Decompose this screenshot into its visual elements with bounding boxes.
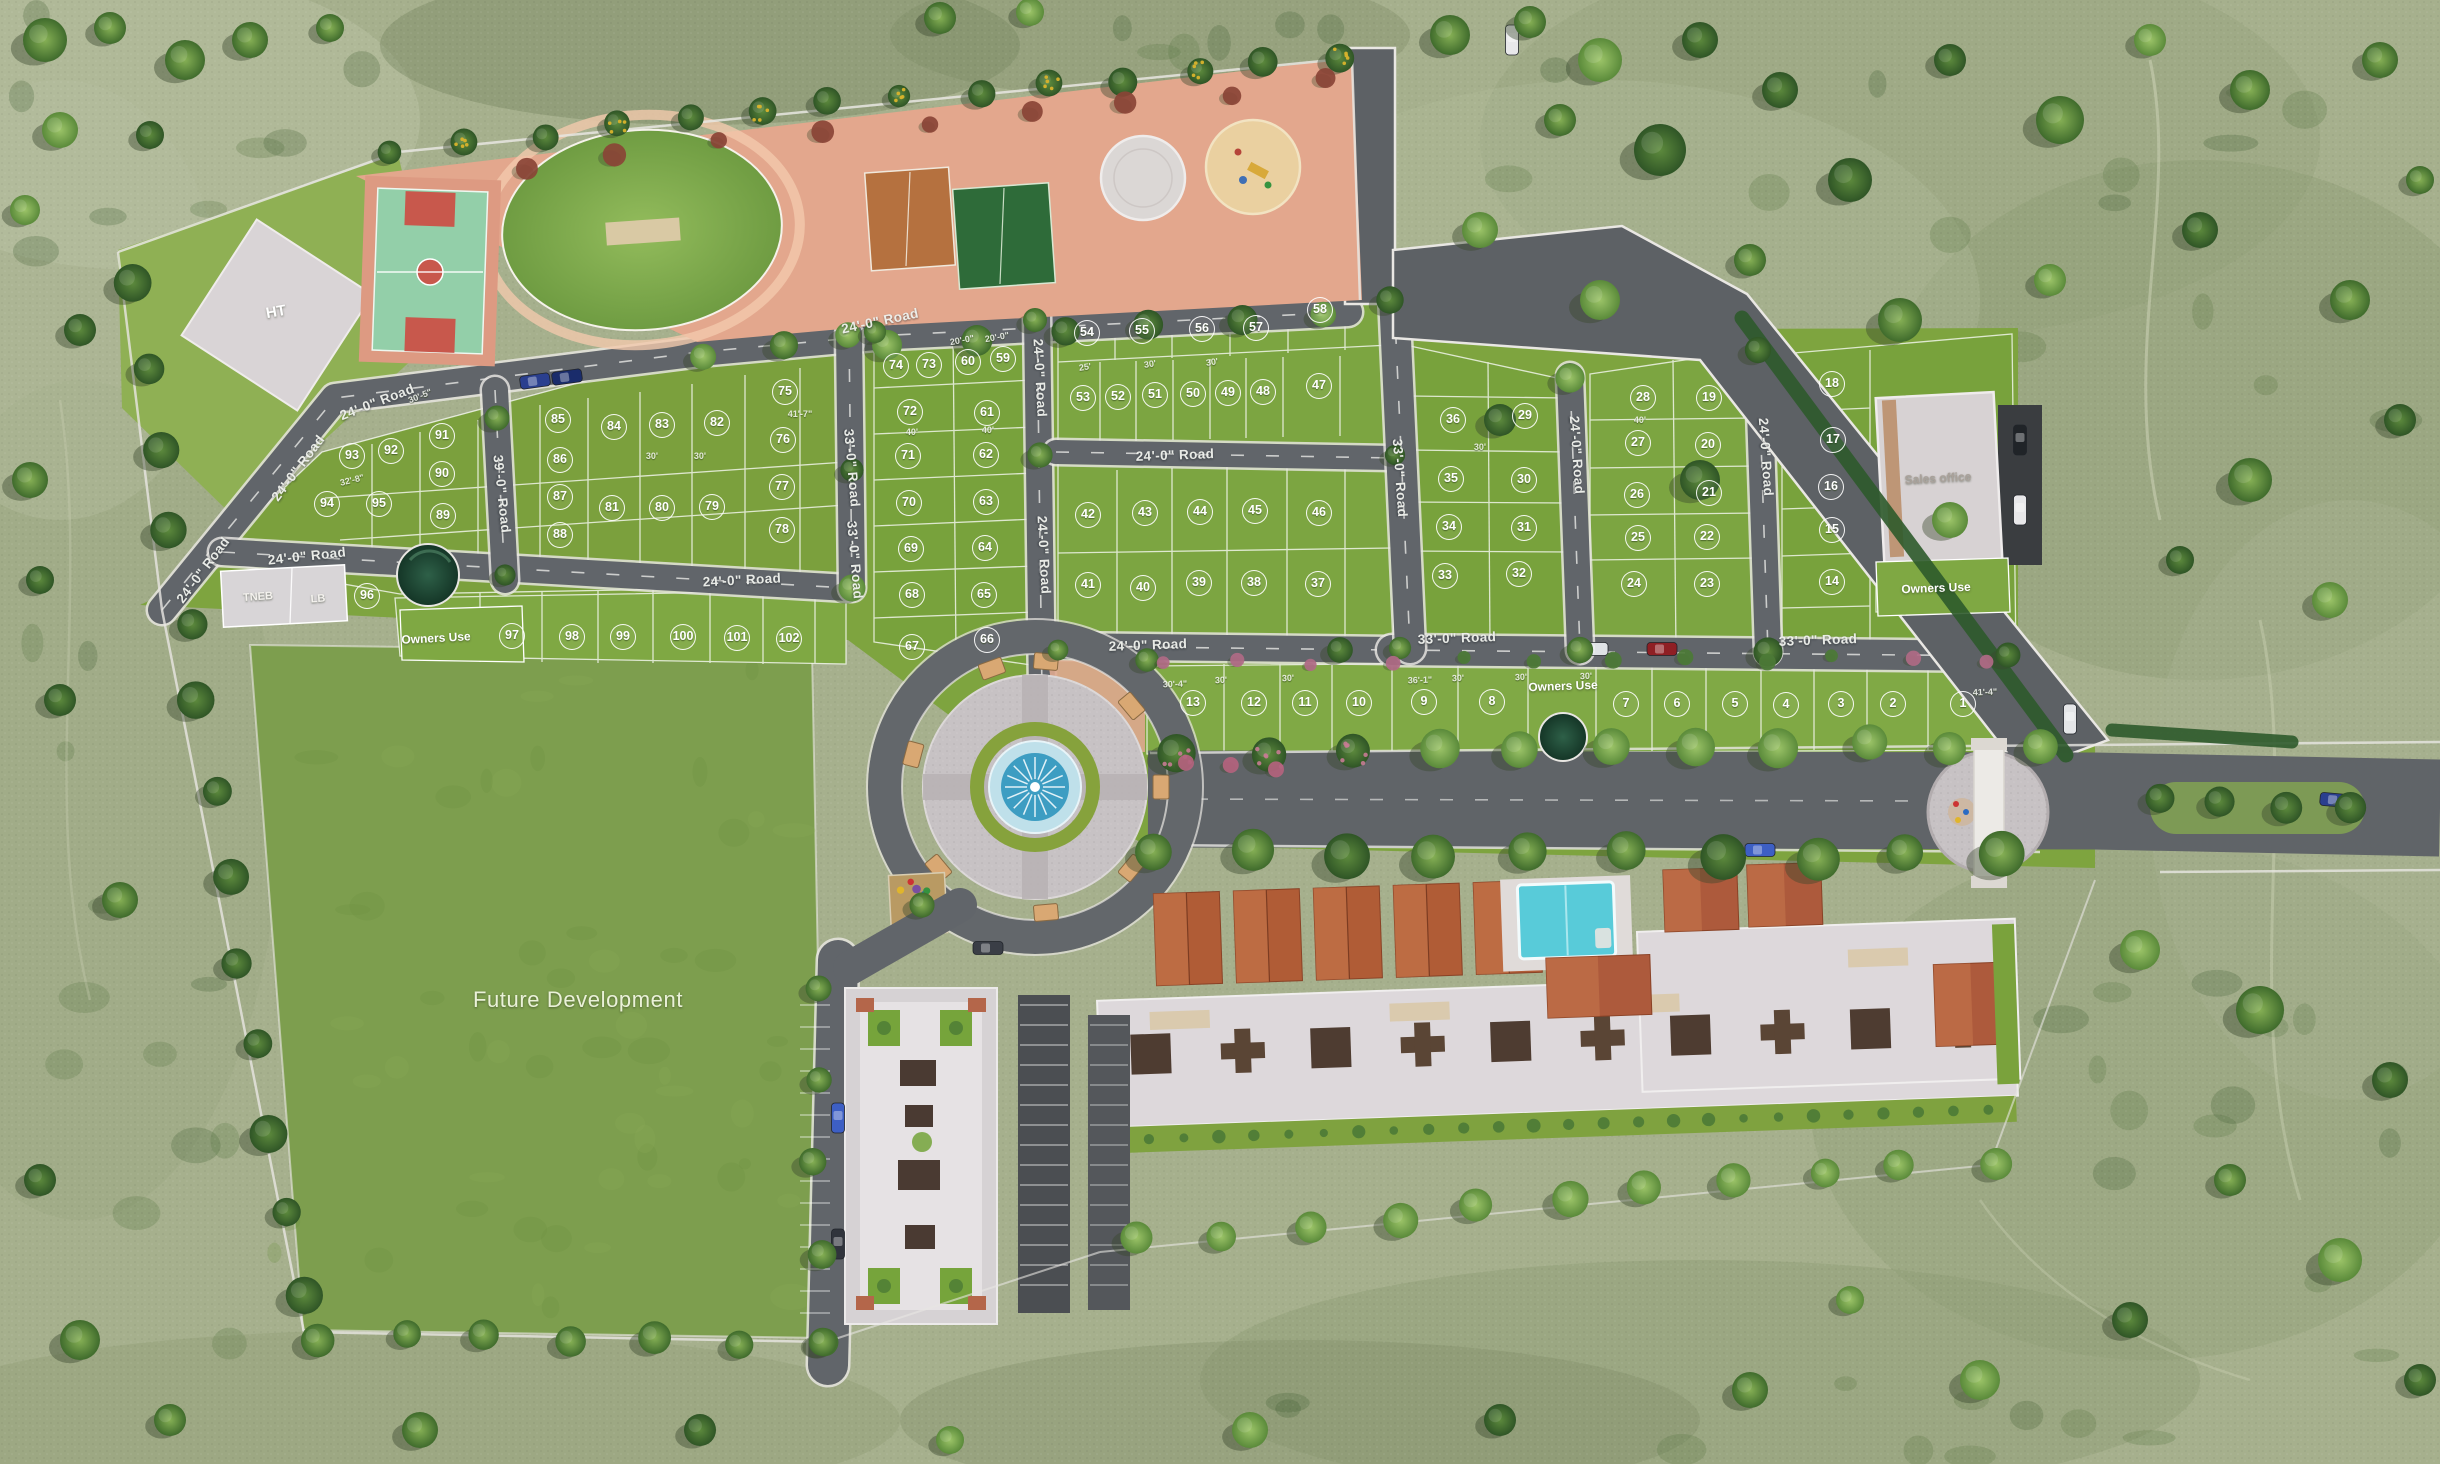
plot-number-87: 87	[547, 484, 573, 510]
plot-number-85: 85	[545, 407, 571, 433]
road-label: 24'-0" Road	[1034, 515, 1053, 594]
plot-number-71: 71	[895, 443, 921, 469]
plot-number-35: 35	[1438, 466, 1464, 492]
plot-number-83: 83	[649, 412, 675, 438]
plot-number-4: 4	[1773, 692, 1799, 718]
dimension-label: 30'	[694, 451, 706, 461]
plot-number-52: 52	[1105, 384, 1131, 410]
plot-number-28: 28	[1630, 385, 1656, 411]
road-label: 24'-0" Road	[1030, 338, 1049, 417]
road-label: 24'-0" Road	[173, 534, 232, 606]
plot-number-7: 7	[1613, 691, 1639, 717]
plot-number-100: 100	[670, 624, 696, 650]
dimension-label: 30'	[1215, 675, 1227, 685]
dimension-label: 41'-7"	[788, 409, 812, 419]
plot-number-43: 43	[1132, 500, 1158, 526]
plot-number-47: 47	[1306, 373, 1332, 399]
plot-number-12: 12	[1241, 690, 1267, 716]
plot-number-88: 88	[547, 522, 573, 548]
plot-number-58: 58	[1307, 297, 1333, 323]
plot-number-31: 31	[1511, 515, 1537, 541]
dimension-label: 30'	[1580, 671, 1592, 681]
road-label: 24'-0" Road	[1756, 417, 1776, 496]
road-label: 33'-0" Road	[1778, 631, 1857, 649]
area-label-tneb: TNEB	[243, 590, 274, 604]
road-label: 24'-0" Road	[1567, 415, 1587, 494]
plot-number-75: 75	[772, 379, 798, 405]
plot-number-84: 84	[601, 414, 627, 440]
plot-number-76: 76	[770, 427, 796, 453]
road-label: 33'-0" Road	[1417, 629, 1496, 647]
plot-number-73: 73	[916, 352, 942, 378]
plot-number-22: 22	[1694, 524, 1720, 550]
area-label-sales-office: Sales office	[1904, 469, 1971, 486]
area-label-owners-use-bottom: Owners Use	[1528, 678, 1598, 694]
plot-number-89: 89	[430, 503, 456, 529]
plot-number-37: 37	[1305, 571, 1331, 597]
plot-number-34: 34	[1436, 514, 1462, 540]
plot-number-53: 53	[1070, 385, 1096, 411]
plot-number-41: 41	[1075, 572, 1101, 598]
plot-number-13: 13	[1180, 690, 1206, 716]
plot-number-24: 24	[1621, 571, 1647, 597]
plot-number-49: 49	[1215, 380, 1241, 406]
plot-number-46: 46	[1306, 500, 1332, 526]
plot-number-20: 20	[1695, 432, 1721, 458]
plot-number-21: 21	[1696, 480, 1722, 506]
plot-number-25: 25	[1625, 525, 1651, 551]
plot-number-16: 16	[1818, 474, 1844, 500]
plot-number-36: 36	[1440, 407, 1466, 433]
plot-number-66: 66	[974, 627, 1000, 653]
plot-number-19: 19	[1696, 385, 1722, 411]
plot-number-72: 72	[897, 399, 923, 425]
dimension-label: 41'-4"	[1973, 687, 1998, 698]
plot-number-63: 63	[973, 489, 999, 515]
plot-number-54: 54	[1074, 320, 1100, 346]
plot-number-42: 42	[1075, 502, 1101, 528]
plot-number-93: 93	[339, 443, 365, 469]
plot-number-44: 44	[1187, 499, 1213, 525]
plot-number-64: 64	[972, 535, 998, 561]
plot-number-18: 18	[1819, 371, 1845, 397]
road-label: 33'-0" Road	[841, 428, 863, 508]
dimension-label: 40'	[1634, 415, 1646, 425]
road-label: 24'-0" Road	[1108, 636, 1187, 654]
plot-number-15: 15	[1819, 517, 1845, 543]
plot-number-6: 6	[1664, 691, 1690, 717]
plot-number-51: 51	[1142, 382, 1168, 408]
site-plan-canvas: 24'-0" Road24'-0" Road24'-0" Road24'-0" …	[0, 0, 2440, 1464]
area-label-owners-use-right: Owners Use	[1901, 580, 1971, 596]
road-label: 24'-0" Road	[702, 570, 781, 589]
plot-number-74: 74	[883, 353, 909, 379]
road-label: 24'-0" Road	[267, 544, 347, 567]
area-label-ht: HT	[265, 302, 288, 322]
plot-number-8: 8	[1479, 689, 1505, 715]
road-label: 24'-0" Road	[840, 305, 920, 336]
dimension-label: 20'-0"	[984, 330, 1010, 344]
plot-number-62: 62	[973, 442, 999, 468]
plot-number-26: 26	[1624, 482, 1650, 508]
plot-number-57: 57	[1243, 315, 1269, 341]
dimension-label: 30'-4"	[1163, 679, 1188, 690]
plot-number-90: 90	[429, 461, 455, 487]
dimension-label: 30'	[1143, 358, 1156, 370]
plot-number-65: 65	[971, 582, 997, 608]
plot-number-97: 97	[499, 623, 525, 649]
plot-number-78: 78	[769, 517, 795, 543]
plot-number-32: 32	[1506, 561, 1532, 587]
plot-number-61: 61	[974, 400, 1000, 426]
plot-number-33: 33	[1432, 563, 1458, 589]
plot-number-96: 96	[354, 583, 380, 609]
plot-number-14: 14	[1819, 569, 1845, 595]
plot-number-102: 102	[776, 626, 802, 652]
labels-layer: 24'-0" Road24'-0" Road24'-0" Road24'-0" …	[0, 0, 2440, 1464]
plot-number-68: 68	[899, 582, 925, 608]
plot-number-55: 55	[1129, 318, 1155, 344]
dimension-label: 30'	[1474, 442, 1486, 452]
road-label: 24'-0" Road	[1135, 446, 1214, 464]
dimension-label: 25'	[1078, 361, 1091, 373]
plot-number-1: 1	[1950, 691, 1976, 717]
plot-number-81: 81	[599, 495, 625, 521]
dimension-label: 32'-8"	[339, 472, 365, 488]
plot-number-94: 94	[314, 491, 340, 517]
dimension-label: 30'	[1515, 672, 1527, 682]
plot-number-29: 29	[1512, 403, 1538, 429]
dimension-label: 30'	[1282, 673, 1294, 683]
road-label: 39'-0" Road	[490, 454, 513, 534]
dimension-label: 30'	[1205, 356, 1218, 368]
dimension-label: 20'-0"	[949, 333, 975, 347]
plot-number-67: 67	[899, 634, 925, 660]
plot-number-30: 30	[1511, 467, 1537, 493]
plot-number-39: 39	[1186, 570, 1212, 596]
plot-number-92: 92	[378, 438, 404, 464]
plot-number-10: 10	[1346, 690, 1372, 716]
plot-number-38: 38	[1241, 570, 1267, 596]
dimension-label: 30'	[1452, 673, 1464, 683]
plot-number-60: 60	[955, 349, 981, 375]
plot-number-99: 99	[610, 624, 636, 650]
plot-number-11: 11	[1292, 690, 1318, 716]
plot-number-5: 5	[1722, 691, 1748, 717]
area-label-owners-use-left: Owners Use	[401, 629, 471, 647]
plot-number-59: 59	[990, 346, 1016, 372]
plot-number-3: 3	[1828, 691, 1854, 717]
plot-number-45: 45	[1242, 498, 1268, 524]
plot-number-70: 70	[896, 490, 922, 516]
plot-number-98: 98	[559, 624, 585, 650]
dimension-label: 30'-5"	[407, 387, 433, 405]
road-label: 33'-0" Road	[1390, 438, 1410, 517]
plot-number-82: 82	[704, 410, 730, 436]
plot-number-80: 80	[649, 495, 675, 521]
plot-number-23: 23	[1694, 571, 1720, 597]
plot-number-40: 40	[1130, 575, 1156, 601]
dimension-label: 40'	[982, 425, 994, 435]
dimension-label: 30'	[646, 451, 658, 461]
plot-number-86: 86	[547, 447, 573, 473]
plot-number-77: 77	[769, 474, 795, 500]
area-label-future-development: Future Development	[473, 987, 683, 1013]
plot-number-17: 17	[1820, 427, 1846, 453]
plot-number-27: 27	[1625, 430, 1651, 456]
plot-number-101: 101	[724, 625, 750, 651]
dimension-label: 36'-1"	[1408, 675, 1433, 686]
plot-number-95: 95	[366, 491, 392, 517]
plot-number-79: 79	[699, 494, 725, 520]
plot-number-2: 2	[1880, 691, 1906, 717]
plot-number-50: 50	[1180, 381, 1206, 407]
plot-number-9: 9	[1411, 689, 1437, 715]
dimension-label: 40'	[906, 427, 918, 437]
road-label: 33'-0" Road	[844, 520, 866, 600]
plot-number-48: 48	[1250, 379, 1276, 405]
area-label-lb: LB	[310, 593, 325, 606]
plot-number-91: 91	[429, 423, 455, 449]
road-label: 24'-0" Road	[338, 381, 417, 423]
plot-number-56: 56	[1189, 316, 1215, 342]
plot-number-69: 69	[898, 536, 924, 562]
